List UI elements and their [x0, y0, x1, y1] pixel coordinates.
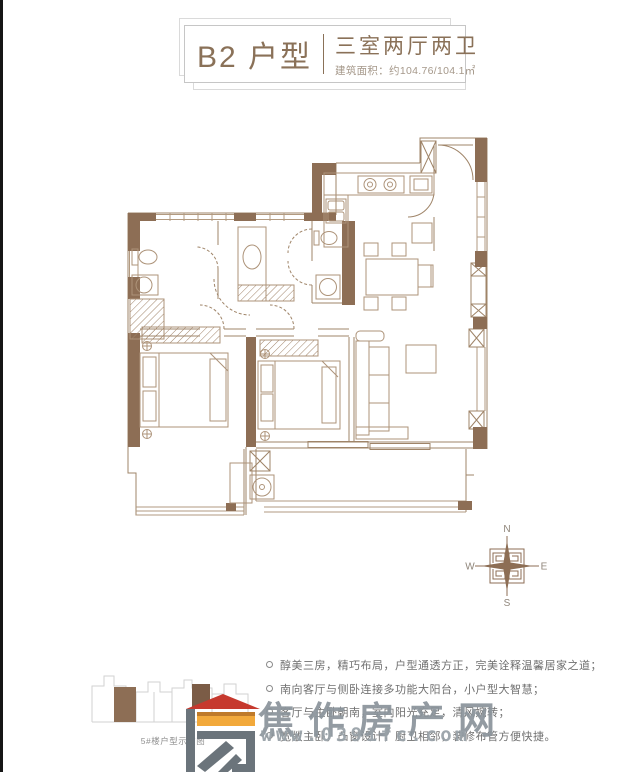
- kitchen-cart-icon: [412, 223, 432, 243]
- bathroom-right: [314, 231, 340, 299]
- sofa-icon: [356, 331, 408, 439]
- wall-socket-icon: [261, 350, 270, 359]
- living-room: [356, 331, 436, 439]
- built-area-label: 建筑面积：约104.76/104.1㎡: [335, 63, 479, 78]
- dining-set: [364, 243, 433, 310]
- title-box: B2 户型 三室两厅两卫 建筑面积：约104.76/104.1㎡: [184, 25, 466, 83]
- toilet-icon: [314, 231, 337, 245]
- compass-rose: N S W E: [462, 522, 552, 608]
- wardrobe-icon: [142, 327, 220, 343]
- walls: [128, 138, 487, 511]
- feature-text: 醇美三房，精巧布局，户型通透方正，完美诠释温馨居家之道；: [280, 660, 602, 672]
- logo-roof: [186, 694, 260, 709]
- bed-icon: [140, 353, 228, 427]
- toilet-icon: [132, 249, 157, 265]
- stove-icon: [358, 176, 404, 193]
- side-table-icon: [406, 345, 436, 373]
- shower-basin-icon: [316, 275, 340, 299]
- highlighted-unit: [114, 687, 136, 722]
- compass-north-label: N: [503, 524, 510, 535]
- compass-star: [481, 540, 533, 592]
- bullet-ring-icon: [266, 661, 273, 668]
- unit-name: B2 户型: [197, 32, 312, 76]
- vanity-counter-icon: [238, 227, 266, 285]
- compass-south-label: S: [504, 598, 511, 608]
- site-logo-icon: [180, 688, 266, 772]
- room-count-label: 三室两厅两卫: [335, 30, 479, 60]
- washing-machine-icon: [250, 475, 274, 499]
- title-block: B2 户型 三室两厅两卫 建筑面积：约104.76/104.1㎡: [184, 25, 466, 83]
- bedroom-2: [258, 340, 340, 441]
- title-right-column: 三室两厅两卫 建筑面积：约104.76/104.1㎡: [335, 30, 479, 78]
- wall-socket-icon: [261, 432, 270, 441]
- dining-table-icon: [366, 259, 418, 295]
- compass-east-label: E: [541, 562, 548, 573]
- wall-socket-icon: [143, 430, 152, 439]
- compass-west-label: W: [465, 562, 475, 573]
- title-divider: [323, 34, 324, 74]
- bedroom-1: [140, 327, 228, 439]
- wall-socket-icon: [143, 342, 152, 351]
- feature-item: 醇美三房，精巧布局，户型通透方正，完美诠释温馨居家之道；: [266, 660, 640, 672]
- bed-icon: [258, 361, 340, 429]
- kitchen: [324, 173, 434, 247]
- vanity-room: [238, 227, 294, 301]
- logo-orange-bar: [197, 716, 255, 726]
- kitchen-cabinet-icon: [410, 176, 432, 193]
- image-left-edge-bar: [0, 0, 3, 772]
- floor-plan-drawing: [118, 133, 493, 529]
- watermark-site-url: www.0391fc.com: [261, 724, 470, 746]
- balcony-cabinet-icon: [230, 463, 252, 503]
